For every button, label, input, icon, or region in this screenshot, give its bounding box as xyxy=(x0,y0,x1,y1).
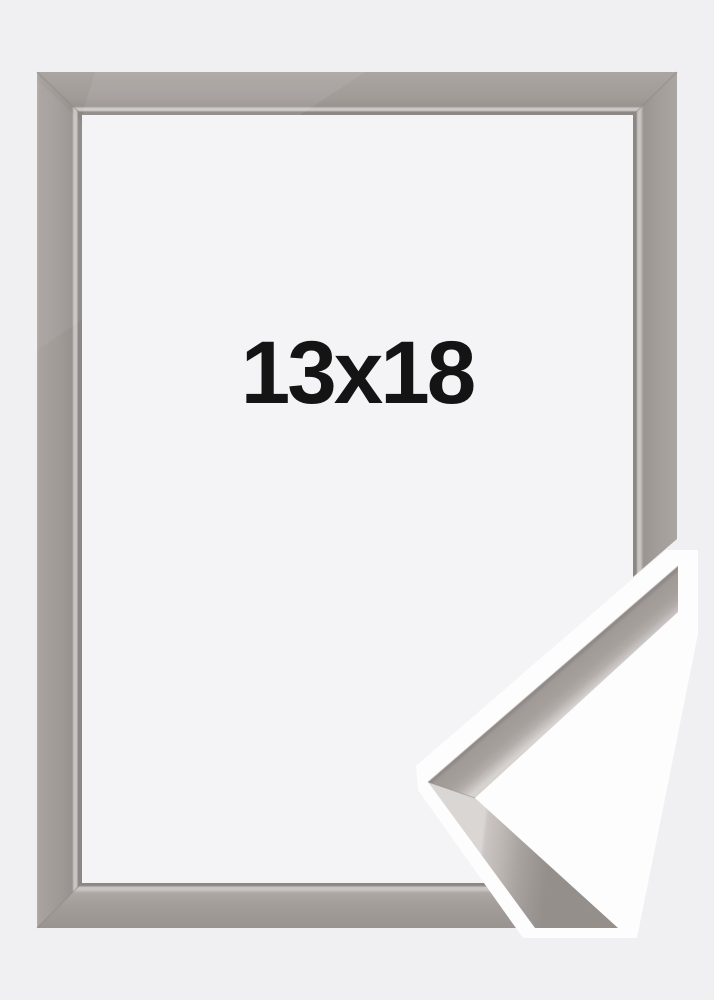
size-label: 13x18 xyxy=(0,328,714,417)
product-image: 13x18 xyxy=(0,0,714,1000)
frame-right-rail xyxy=(633,72,677,577)
frame-illustration xyxy=(0,0,714,1000)
frame-bottom-rail xyxy=(37,883,522,928)
